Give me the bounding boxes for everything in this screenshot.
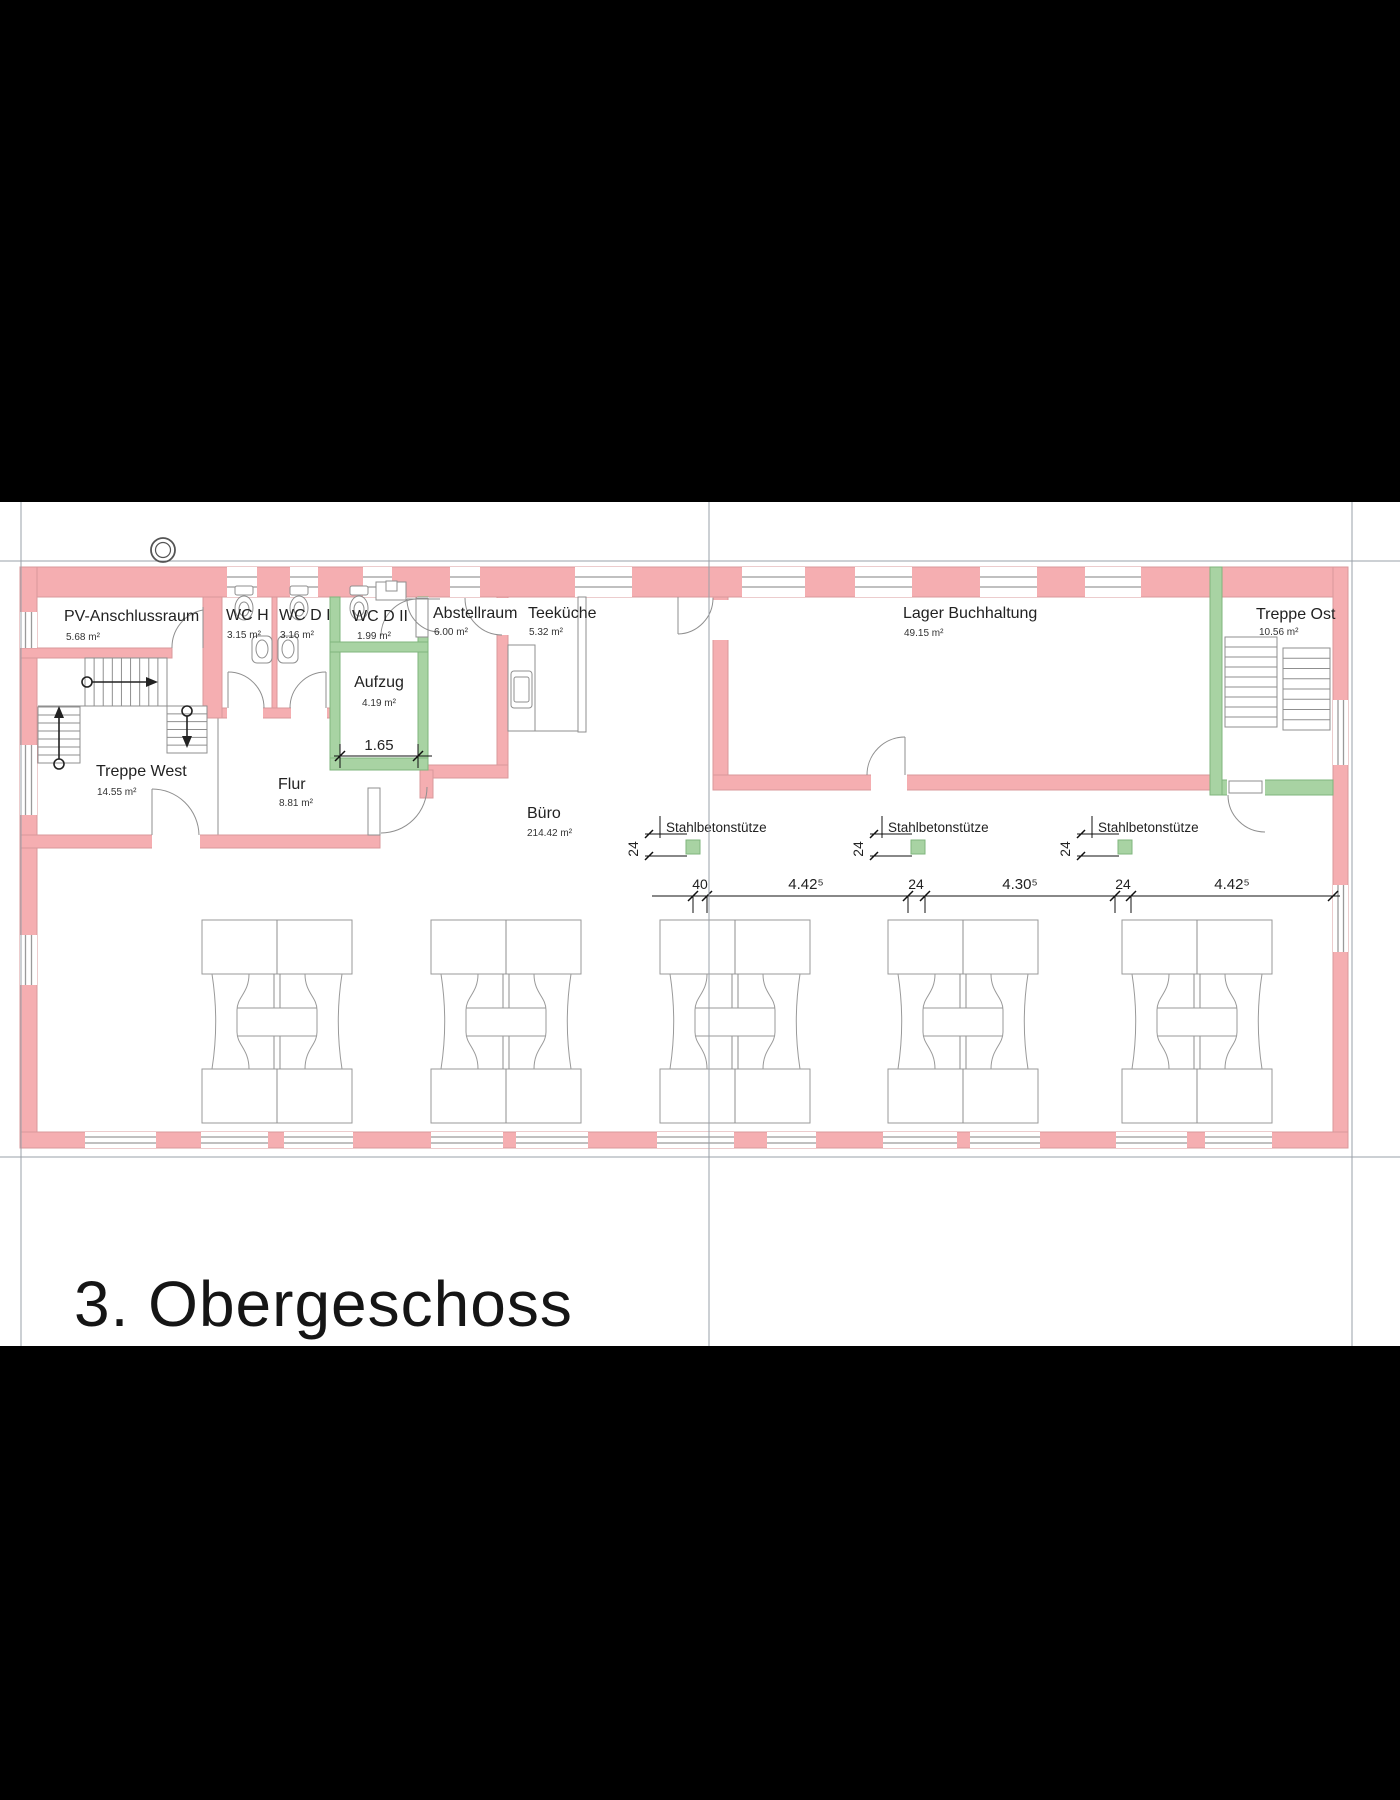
room-area-treppe-west: 14.55 m² <box>97 787 137 798</box>
room-label-abstellraum: Abstellraum <box>433 605 517 622</box>
desk-group <box>431 920 581 1123</box>
window <box>883 1132 957 1148</box>
window <box>855 567 912 597</box>
window <box>201 1132 268 1148</box>
window <box>1333 700 1348 765</box>
room-label-wc-h: WC H <box>226 607 269 624</box>
column-label-2: Stahlbetonstütze <box>888 820 989 835</box>
room-area-wc-h: 3.15 m² <box>227 630 262 641</box>
room-area-pv: 5.68 m² <box>66 632 101 643</box>
dim-chain-3: 4.30⁵ <box>1002 876 1037 893</box>
window <box>575 567 632 597</box>
room-label-wc-d-i: WC D I <box>279 607 331 624</box>
kitchen-counter <box>508 645 535 731</box>
window <box>85 1132 156 1148</box>
stair-flight <box>1225 637 1277 727</box>
room-label-teekueche: Teeküche <box>528 605 597 622</box>
room-label-treppe-ost: Treppe Ost <box>1256 606 1336 623</box>
room-label-wc-d-ii: WC D II <box>352 608 408 625</box>
dim-chain-1: 4.42⁵ <box>788 876 823 893</box>
room-area-wc-d-ii: 1.99 m² <box>357 631 392 642</box>
desk-center-table <box>694 1008 776 1036</box>
window <box>284 1132 353 1148</box>
room-area-aufzug: 4.19 m² <box>362 698 397 709</box>
room-area-treppe-ost: 10.56 m² <box>1259 627 1299 638</box>
room-area-lager: 49.15 m² <box>904 628 944 639</box>
dim-chain-5: 4.42⁵ <box>1214 876 1249 893</box>
window <box>980 567 1037 597</box>
dim-chain-4: 24 <box>1115 876 1131 892</box>
concrete-column <box>1118 840 1132 854</box>
window <box>1116 1132 1187 1148</box>
desk-center-table <box>1156 1008 1238 1036</box>
window <box>657 1132 734 1148</box>
concrete-column <box>686 840 700 854</box>
column-label-3: Stahlbetonstütze <box>1098 820 1199 835</box>
concrete-column <box>911 840 925 854</box>
cistern-icon <box>376 581 406 600</box>
desk-center-table <box>465 1008 547 1036</box>
window <box>1205 1132 1272 1148</box>
floor-plan-page: PV-Anschlussraum 5.68 m² WC H 3.15 m² WC… <box>0 0 1400 1800</box>
column-dim-1: 24 <box>625 841 641 857</box>
room-label-treppe-west: Treppe West <box>96 763 187 780</box>
floor-plan-drawing: PV-Anschlussraum 5.68 m² WC H 3.15 m² WC… <box>0 0 1400 1800</box>
window <box>20 935 37 985</box>
desk-group <box>1122 920 1272 1123</box>
window <box>970 1132 1040 1148</box>
window <box>767 1132 816 1148</box>
room-area-buero: 214.42 m² <box>527 828 573 839</box>
window <box>450 567 480 597</box>
window <box>20 745 37 815</box>
room-area-flur: 8.81 m² <box>279 798 314 809</box>
window <box>1333 885 1348 952</box>
desk-group <box>888 920 1038 1123</box>
column-dim-2: 24 <box>850 841 866 857</box>
window <box>516 1132 588 1148</box>
room-label-buero: Büro <box>527 805 561 822</box>
window <box>20 612 37 648</box>
room-label-pv: PV-Anschlussraum <box>64 608 199 625</box>
desk-center-table <box>922 1008 1004 1036</box>
room-label-lager: Lager Buchhaltung <box>903 605 1037 622</box>
window <box>1085 567 1141 597</box>
room-area-wc-d-i: 3.16 m² <box>280 630 315 641</box>
dim-chain-2: 24 <box>908 876 924 892</box>
room-label-flur: Flur <box>278 776 306 793</box>
room-area-teekueche: 5.32 m² <box>529 627 564 638</box>
room-label-aufzug: Aufzug <box>354 674 404 691</box>
column-dim-3: 24 <box>1057 841 1073 857</box>
sheet-title: 3. Obergeschoss <box>74 1268 573 1340</box>
desk-group <box>660 920 810 1123</box>
window <box>431 1132 503 1148</box>
desk-group <box>202 920 352 1123</box>
dim-chain-0: 40 <box>692 876 708 892</box>
desk-center-table <box>236 1008 318 1036</box>
aufzug-width-dim: 1.65 <box>364 737 393 754</box>
window <box>742 567 805 597</box>
column-label-1: Stahlbetonstütze <box>666 820 767 835</box>
room-area-abstellraum: 6.00 m² <box>434 627 469 638</box>
